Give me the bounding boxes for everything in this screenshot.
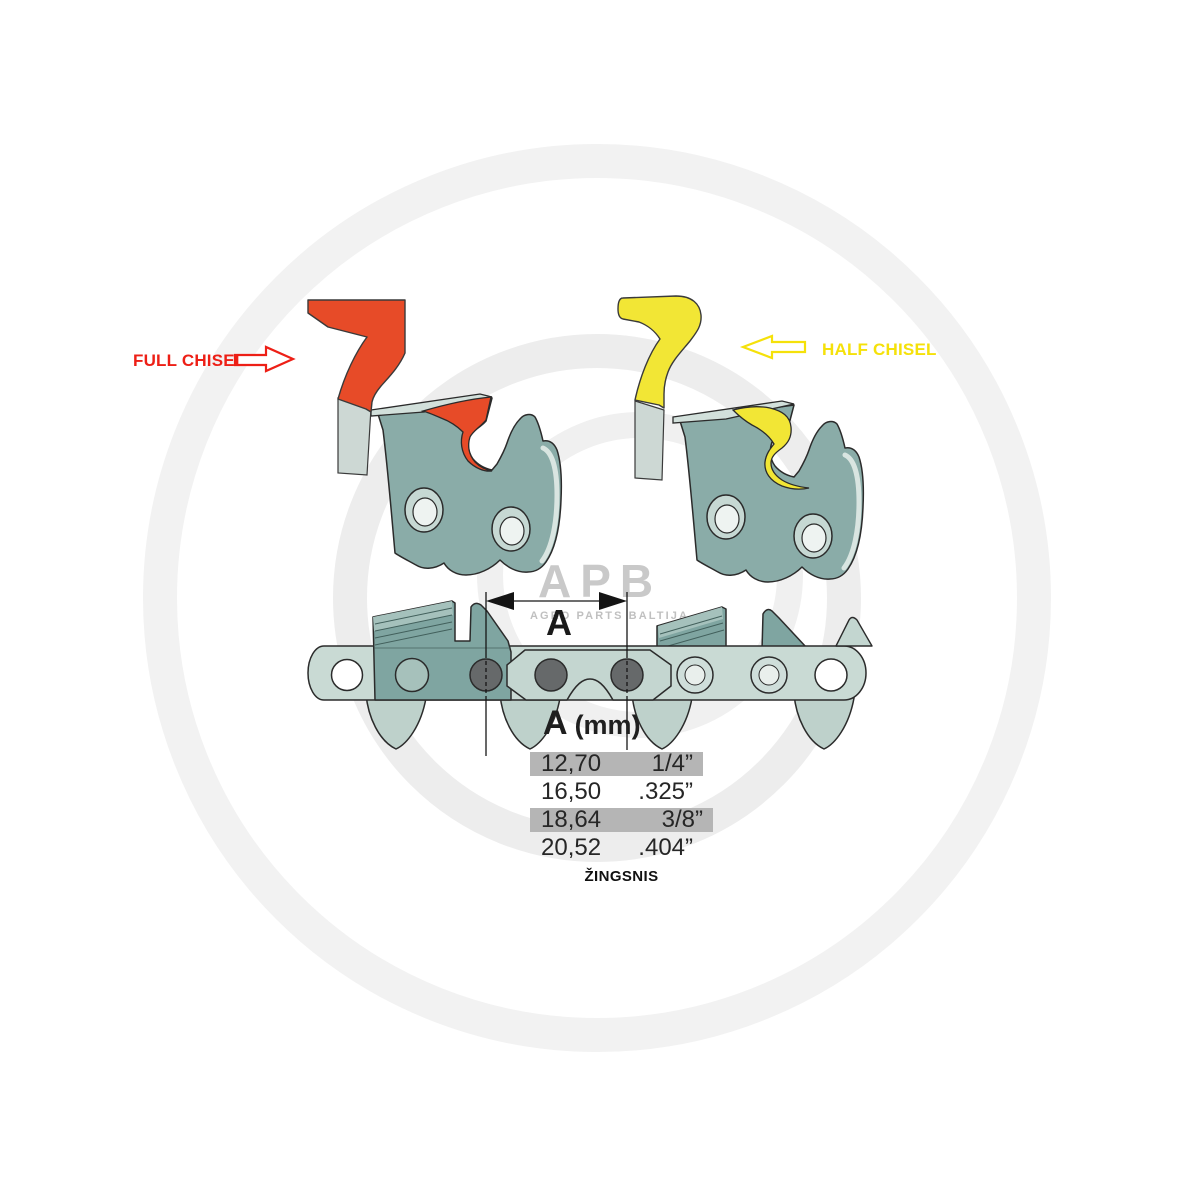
pitch-dimension-label: A bbox=[546, 602, 572, 644]
pitch-table-row: 16,50 .325” bbox=[530, 780, 703, 804]
pitch-caption: ŽINGSNIS bbox=[530, 868, 713, 885]
pitch-mm-value: 20,52 bbox=[541, 836, 601, 860]
pitch-inch-value: 1/4” bbox=[652, 752, 693, 776]
half-chisel-arrow-icon bbox=[743, 336, 805, 358]
strap-hole bbox=[332, 660, 363, 691]
pitch-table-header: A (mm) bbox=[543, 704, 713, 748]
pitch-mm-value: 12,70 bbox=[541, 752, 601, 776]
cutter-hole bbox=[396, 659, 429, 692]
pitch-table-row: 20,52 .404” bbox=[530, 836, 703, 860]
full-chisel-label: FULL CHISEL bbox=[133, 351, 245, 371]
pitch-table: A (mm) 12,70 1/4” 16,50 .325” 18,64 3/8”… bbox=[530, 704, 713, 748]
strap-hole bbox=[815, 659, 847, 691]
pitch-mm-value: 18,64 bbox=[541, 808, 601, 832]
pitch-inch-value: 3/8” bbox=[662, 808, 703, 832]
chainsaw-chain-pitch-diagram: APB AGRO PARTS BALTIJA bbox=[0, 0, 1188, 1188]
pitch-table-header-symbol: A bbox=[543, 704, 568, 743]
pitch-inch-value: .325” bbox=[638, 780, 693, 804]
half-chisel-label: HALF CHISEL bbox=[822, 340, 937, 360]
dimension-arrow-right-icon bbox=[599, 592, 627, 610]
pitch-table-row: 18,64 3/8” bbox=[530, 808, 713, 832]
pitch-mm-value: 16,50 bbox=[541, 780, 601, 804]
pitch-inch-value: .404” bbox=[638, 836, 693, 860]
rivet bbox=[535, 659, 567, 691]
watermark-rings-icon bbox=[160, 161, 1034, 1035]
pitch-table-header-unit: (mm) bbox=[575, 710, 641, 741]
diagram-artwork bbox=[0, 0, 1188, 1188]
pitch-table-row: 12,70 1/4” bbox=[530, 752, 703, 776]
